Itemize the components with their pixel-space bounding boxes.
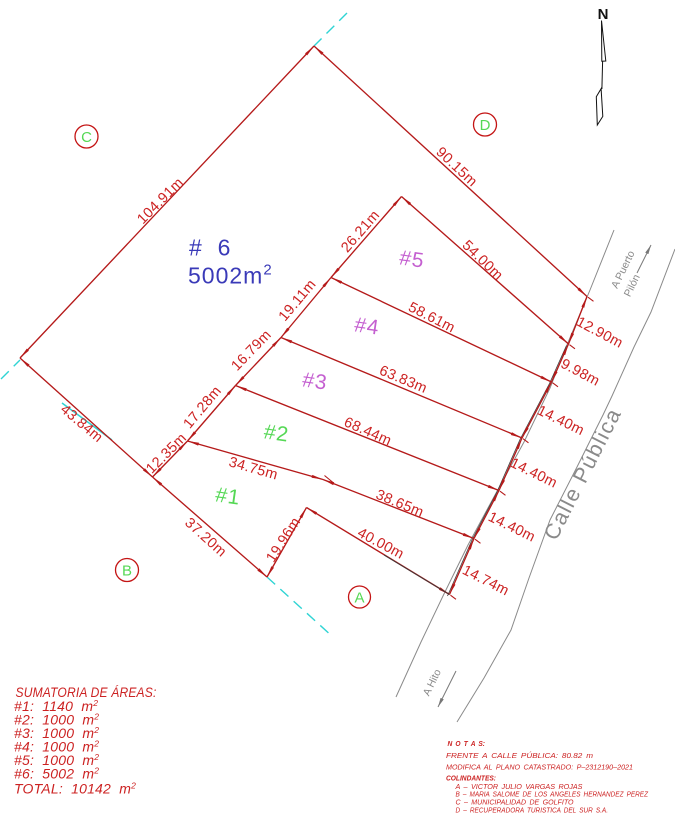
svg-text:17.28m: 17.28m <box>181 383 226 432</box>
svg-text:D: D <box>480 117 491 134</box>
svg-text:FRENTE A CALLE PÚBLICA: 80.82: FRENTE A CALLE PÚBLICA: 80.82 m <box>446 751 593 760</box>
svg-text:14.40m: 14.40m <box>535 403 587 439</box>
svg-text:C: C <box>81 129 92 146</box>
svg-text:38.65m: 38.65m <box>373 487 425 521</box>
svg-text:# 6: # 6 <box>189 235 231 261</box>
svg-text:B: B <box>122 562 132 579</box>
svg-text:A: A <box>354 589 364 606</box>
svg-text:12.90m: 12.90m <box>574 314 626 352</box>
svg-text:MODIFICA AL PLANO CATASTRADO:: MODIFICA AL PLANO CATASTRADO: P–2312190–… <box>446 763 633 772</box>
svg-text:N: N <box>598 6 609 23</box>
svg-text:63.83m: 63.83m <box>377 363 429 397</box>
svg-text:14.74m: 14.74m <box>460 562 512 599</box>
svg-text:14.40m: 14.40m <box>508 455 560 491</box>
svg-text:58.61m: 58.61m <box>406 299 458 336</box>
svg-text:104.91m: 104.91m <box>134 175 187 228</box>
svg-text:43.84m: 43.84m <box>57 402 106 447</box>
svg-text:D – RECUPERADORA TURISTICA DEL: D – RECUPERADORA TURISTICA DEL SUR S.A. <box>456 806 609 815</box>
svg-text:A Hito: A Hito <box>421 667 444 698</box>
svg-text:54.00m: 54.00m <box>459 238 506 284</box>
svg-text:#2: #2 <box>262 420 290 446</box>
svg-text:N O T A S:: N O T A S: <box>448 739 486 748</box>
svg-text:14.40m: 14.40m <box>486 509 538 545</box>
svg-text:68.44m: 68.44m <box>341 414 393 449</box>
svg-text:90.15m: 90.15m <box>433 144 481 190</box>
svg-text:19.96m: 19.96m <box>263 515 304 566</box>
svg-text:5002m2: 5002m2 <box>188 262 273 289</box>
svg-text:9.98m: 9.98m <box>558 356 602 390</box>
svg-text:#4: #4 <box>353 313 381 339</box>
svg-text:#6: 5002 m2: #6: 5002 m2 <box>14 766 99 782</box>
svg-text:#1: #1 <box>214 483 242 509</box>
svg-text:TOTAL: 10142 m2: TOTAL: 10142 m2 <box>14 781 136 797</box>
svg-text:26.21m: 26.21m <box>338 207 383 255</box>
svg-text:#5: #5 <box>398 246 426 272</box>
svg-text:40.00m: 40.00m <box>355 525 407 563</box>
svg-text:#3: #3 <box>301 368 329 394</box>
svg-text:34.75m: 34.75m <box>227 454 280 483</box>
svg-text:12.35m: 12.35m <box>143 430 190 477</box>
